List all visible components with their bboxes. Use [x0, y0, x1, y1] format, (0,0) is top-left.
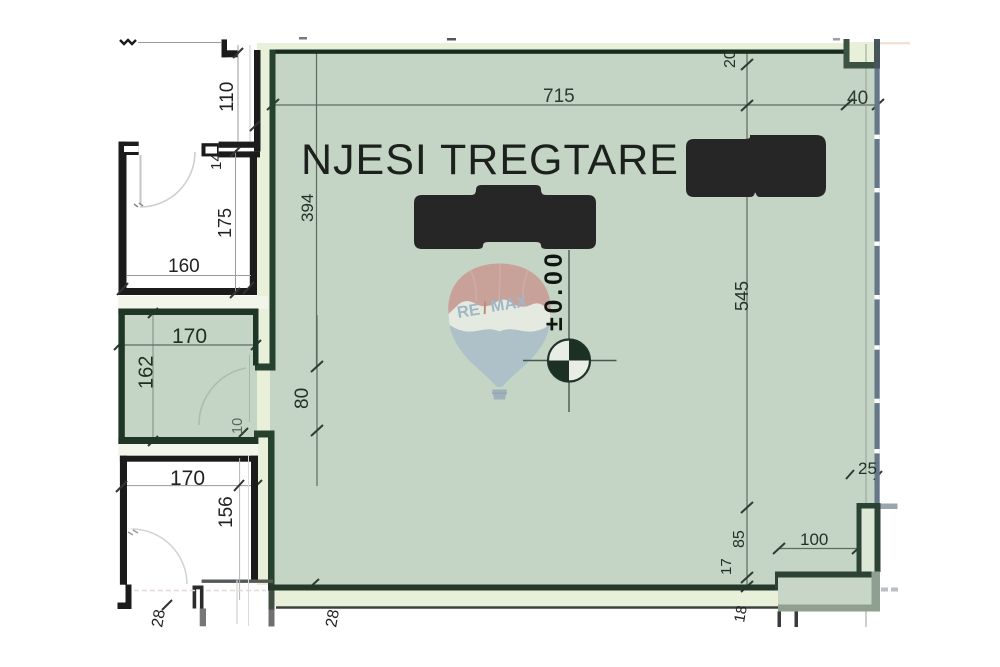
svg-text:±0.00: ±0.00	[540, 250, 568, 331]
svg-text:14: 14	[208, 153, 225, 170]
svg-text:170: 170	[172, 325, 207, 348]
svg-text:25: 25	[858, 459, 877, 478]
svg-text:20: 20	[722, 50, 739, 68]
svg-text:40: 40	[847, 88, 868, 109]
svg-text:110: 110	[217, 82, 238, 112]
svg-text:545: 545	[732, 281, 752, 311]
svg-text:28: 28	[323, 608, 343, 629]
svg-text:10: 10	[230, 418, 246, 434]
svg-text:NJESI TREGTARE: NJESI TREGTARE	[301, 136, 679, 184]
svg-text:162: 162	[136, 356, 158, 389]
svg-text:18: 18	[731, 604, 751, 623]
svg-text:28: 28	[149, 608, 169, 629]
svg-text:715: 715	[543, 86, 575, 107]
svg-text:170: 170	[170, 467, 205, 490]
svg-text:175: 175	[215, 208, 235, 238]
svg-text:394: 394	[298, 194, 317, 222]
svg-text:80: 80	[292, 388, 313, 409]
svg-text:17: 17	[718, 558, 735, 575]
svg-text:RE: RE	[456, 301, 481, 322]
svg-text:100: 100	[800, 530, 828, 549]
svg-text:160: 160	[168, 256, 200, 277]
svg-text:156: 156	[216, 496, 237, 528]
svg-text:85: 85	[731, 530, 748, 548]
